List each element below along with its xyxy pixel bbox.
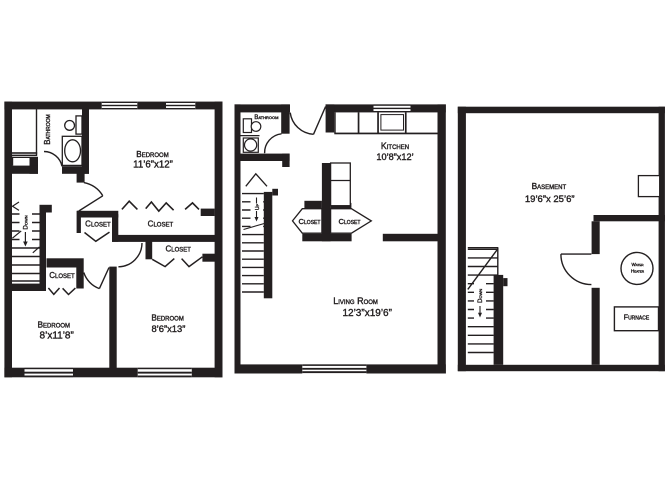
svg-text:Bathroom: Bathroom [254, 115, 278, 121]
svg-text:19’6”x 25’6”: 19’6”x 25’6” [525, 194, 575, 205]
svg-text:Kitchen: Kitchen [381, 141, 409, 151]
svg-text:Bedroom: Bedroom [38, 319, 71, 329]
svg-text:11’6”x12”: 11’6”x12” [133, 159, 173, 170]
svg-text:Bedroom: Bedroom [151, 314, 183, 323]
svg-text:Furnace: Furnace [624, 314, 650, 321]
svg-text:Up: Up [255, 204, 261, 211]
svg-text:Closet: Closet [299, 217, 321, 226]
svg-text:Closet: Closet [165, 244, 191, 253]
svg-text:Down: Down [477, 289, 484, 303]
svg-text:12’3”x19’6”: 12’3”x19’6” [342, 308, 391, 319]
svg-text:Bedroom: Bedroom [136, 150, 168, 159]
svg-text:8’x11’8”: 8’x11’8” [40, 330, 74, 341]
svg-text:Closet: Closet [85, 220, 111, 229]
svg-text:Basement: Basement [532, 181, 567, 191]
svg-text:8’6”x13”: 8’6”x13” [151, 323, 185, 334]
svg-text:Heater: Heater [631, 269, 645, 274]
svg-text:Down: Down [23, 215, 30, 229]
svg-text:Water: Water [631, 262, 644, 267]
svg-text:10’8”x12’: 10’8”x12’ [376, 152, 413, 162]
svg-text:Bathroom: Bathroom [43, 114, 52, 144]
svg-text:Closet: Closet [339, 217, 361, 226]
svg-text:Closet: Closet [148, 220, 174, 229]
svg-text:Living Room: Living Room [333, 296, 378, 306]
svg-text:Closet: Closet [49, 271, 75, 280]
